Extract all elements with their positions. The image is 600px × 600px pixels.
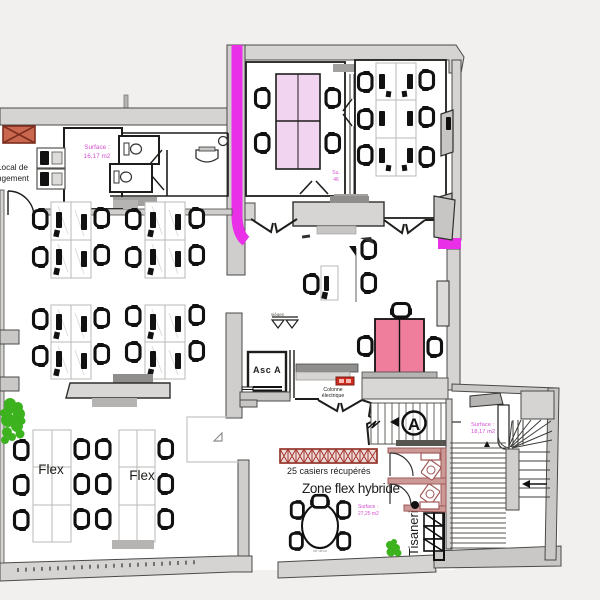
svg-text:ngement: ngement (0, 174, 30, 183)
svg-text:Surface :: Surface : (84, 144, 110, 151)
svg-text:sièges: sièges (271, 312, 285, 317)
svg-text:18,17 m2: 18,17 m2 (471, 429, 495, 435)
svg-text:Flex: Flex (129, 468, 155, 483)
svg-text:27,25 m2: 27,25 m2 (358, 511, 379, 517)
svg-text:Su.: Su. (332, 170, 340, 176)
svg-text:cb déco: cb déco (313, 548, 328, 553)
svg-text:25 casiers récupérés: 25 casiers récupérés (287, 466, 371, 476)
svg-text:Asc A: Asc A (253, 365, 281, 375)
svg-text:Flex: Flex (38, 462, 64, 477)
svg-text:électrique: électrique (322, 393, 345, 399)
svg-text:Surface :: Surface : (358, 504, 378, 510)
svg-text:46: 46 (333, 177, 339, 183)
svg-text:Local de: Local de (0, 163, 28, 172)
svg-text:Zone flex hybride: Zone flex hybride (302, 481, 400, 496)
svg-text:Surface :: Surface : (471, 422, 495, 428)
svg-text:16,17 m2: 16,17 m2 (84, 153, 111, 160)
svg-text:A: A (408, 415, 420, 434)
